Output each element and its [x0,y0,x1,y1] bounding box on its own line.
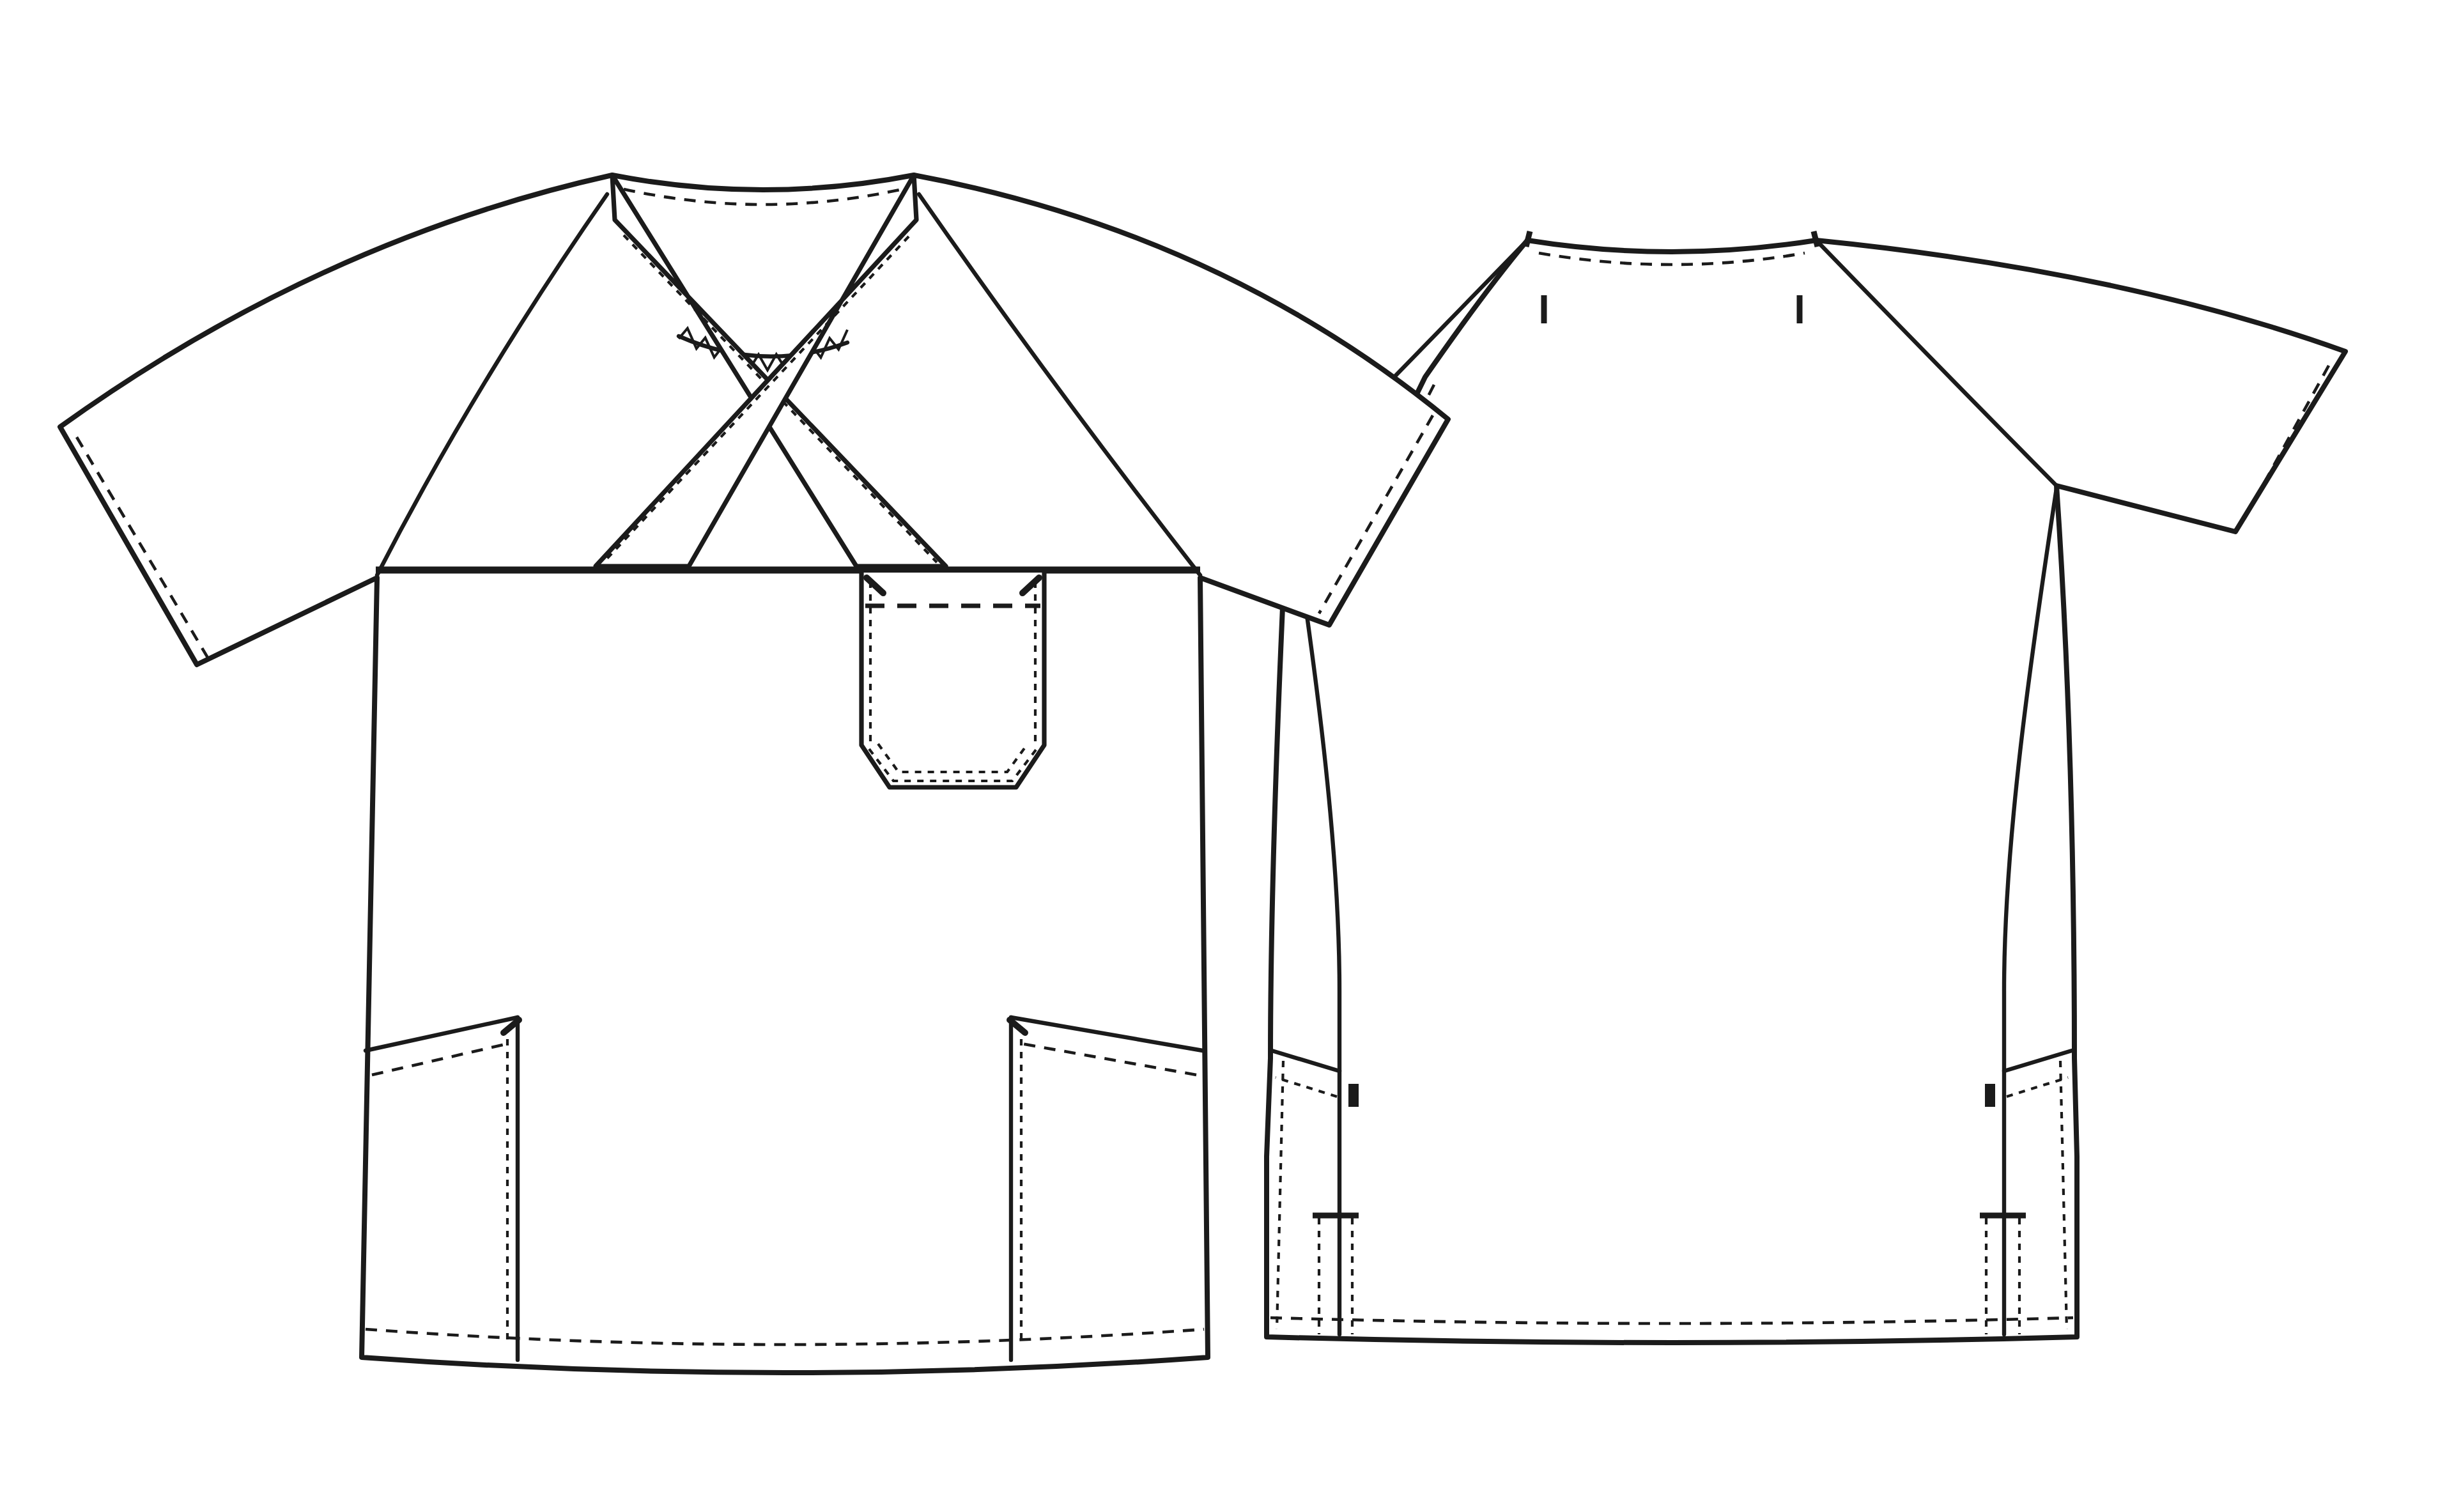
back-right-seam-notch [1985,1084,1995,1107]
sketch-sheet [0,0,2454,1512]
back-view [1267,231,2345,1343]
back-left-seam-notch [1348,1084,1359,1107]
scrub-top-flat-sketch [0,0,2454,1512]
front-view [60,175,1448,1373]
chest-pocket [861,573,1044,787]
